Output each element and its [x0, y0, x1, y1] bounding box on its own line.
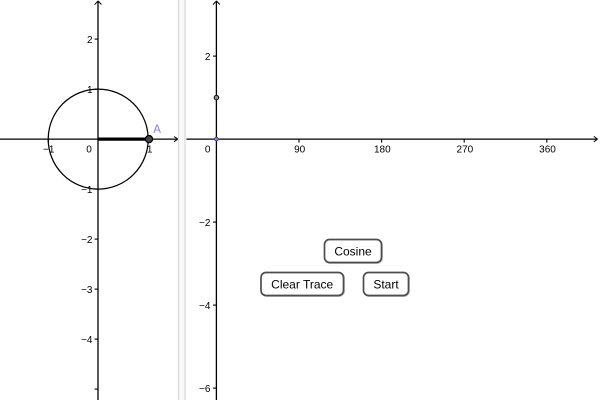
svg-text:0: 0 [205, 145, 211, 156]
svg-text:Cosine: Cosine [334, 244, 372, 258]
svg-text:Start: Start [373, 277, 399, 291]
svg-text:90: 90 [294, 145, 306, 156]
svg-text:−6: −6 [199, 384, 211, 395]
svg-text:0: 0 [86, 145, 92, 156]
svg-text:Clear Trace: Clear Trace [271, 277, 333, 291]
svg-text:−3: −3 [81, 285, 93, 296]
svg-text:A: A [153, 124, 161, 136]
svg-text:270: 270 [457, 145, 474, 156]
svg-text:−2: −2 [81, 235, 93, 246]
svg-text:360: 360 [539, 145, 556, 156]
svg-text:−4: −4 [81, 335, 93, 346]
svg-text:−2: −2 [199, 218, 211, 229]
svg-text:2: 2 [205, 52, 211, 63]
svg-text:−4: −4 [199, 301, 211, 312]
svg-text:2: 2 [87, 35, 93, 46]
svg-text:180: 180 [374, 145, 391, 156]
